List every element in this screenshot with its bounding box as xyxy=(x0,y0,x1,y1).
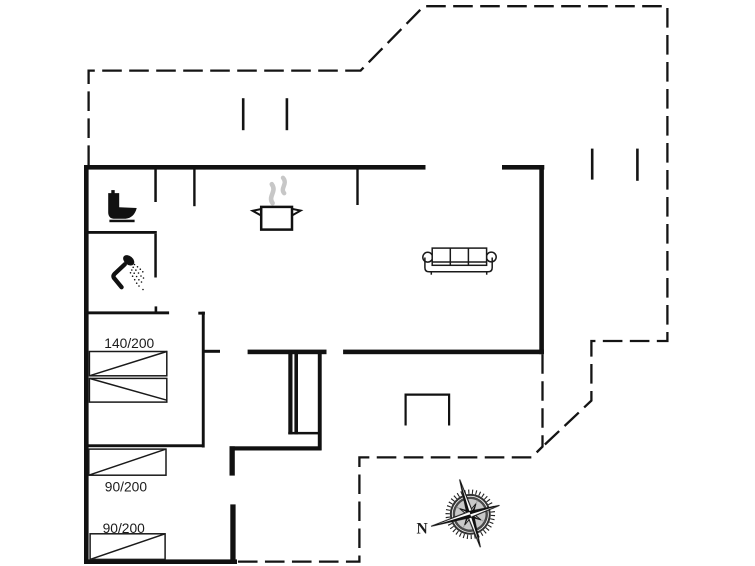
svg-text:140/200: 140/200 xyxy=(104,336,154,351)
svg-text:90/200: 90/200 xyxy=(105,479,148,494)
svg-text:N: N xyxy=(417,521,428,538)
